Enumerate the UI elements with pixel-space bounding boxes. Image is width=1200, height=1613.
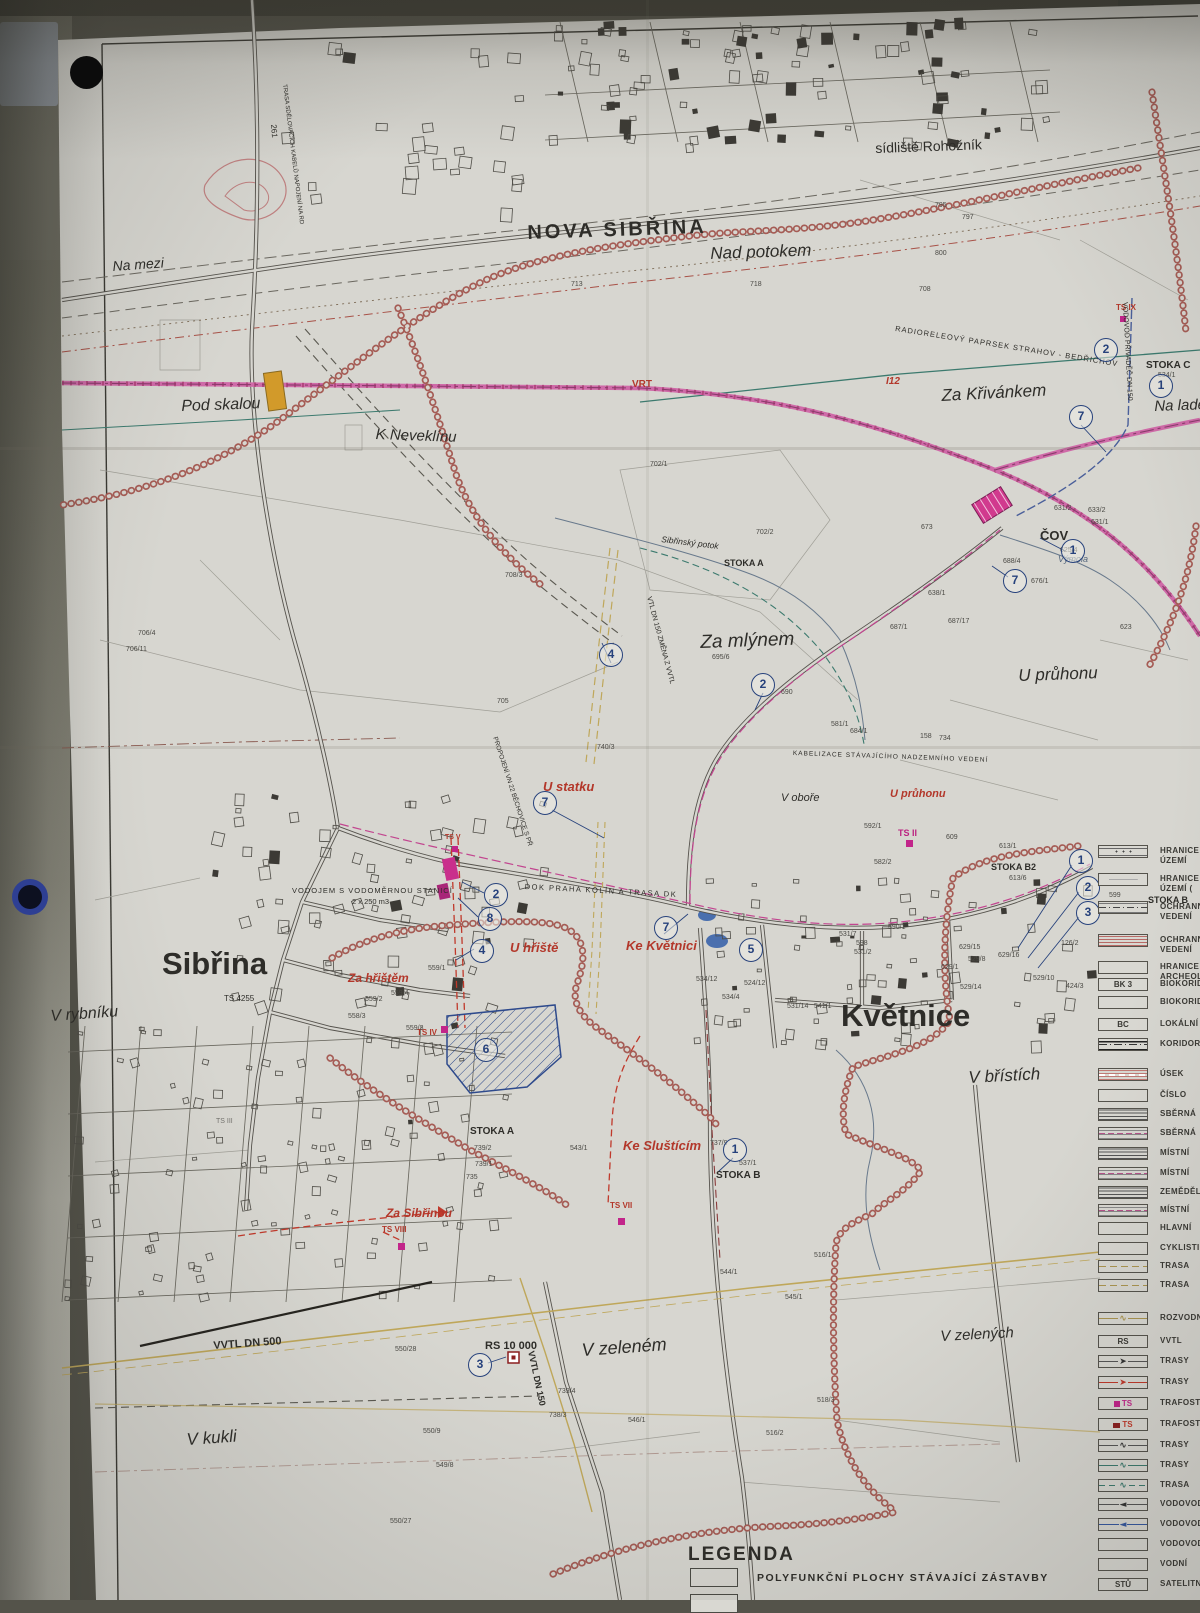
ts-substation-v bbox=[452, 846, 458, 852]
map-photo-scene: NOVA SIBŘINAsídliště RohožníkNad potokem… bbox=[0, 0, 1200, 1600]
map-canvas bbox=[0, 0, 1200, 1600]
hole-punch-dot-blue bbox=[12, 879, 48, 915]
ts-substation-ix bbox=[1120, 316, 1126, 322]
ts-substation-vii bbox=[618, 1218, 625, 1225]
rs-station-dot bbox=[512, 1356, 516, 1360]
ts-substation-viii bbox=[398, 1243, 405, 1250]
hole-punch-dot bbox=[70, 56, 103, 89]
ts-substation-iv bbox=[441, 1026, 448, 1033]
ts-substation-ii bbox=[906, 840, 913, 847]
